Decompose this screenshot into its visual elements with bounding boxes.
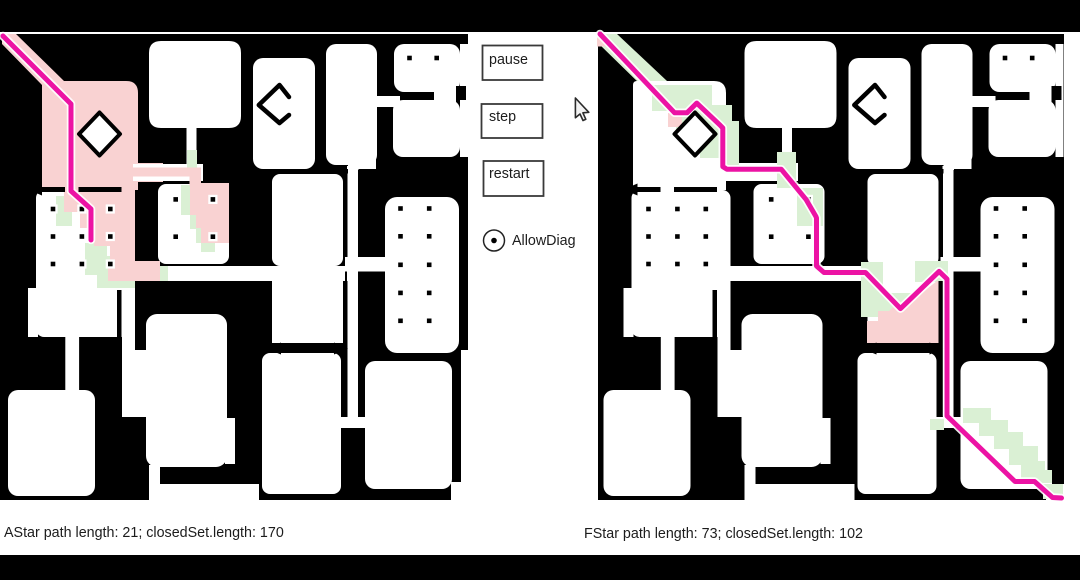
svg-text:step: step [489, 109, 516, 125]
svg-text:pause: pause [489, 52, 528, 68]
svg-text:restart: restart [489, 166, 530, 182]
svg-text:AllowDiag: AllowDiag [512, 233, 576, 249]
svg-text:FStar path length: 73; closedS: FStar path length: 73; closedSet.length:… [584, 526, 863, 542]
svg-text:AStar path length: 21; closedS: AStar path length: 21; closedSet.length:… [4, 525, 284, 541]
